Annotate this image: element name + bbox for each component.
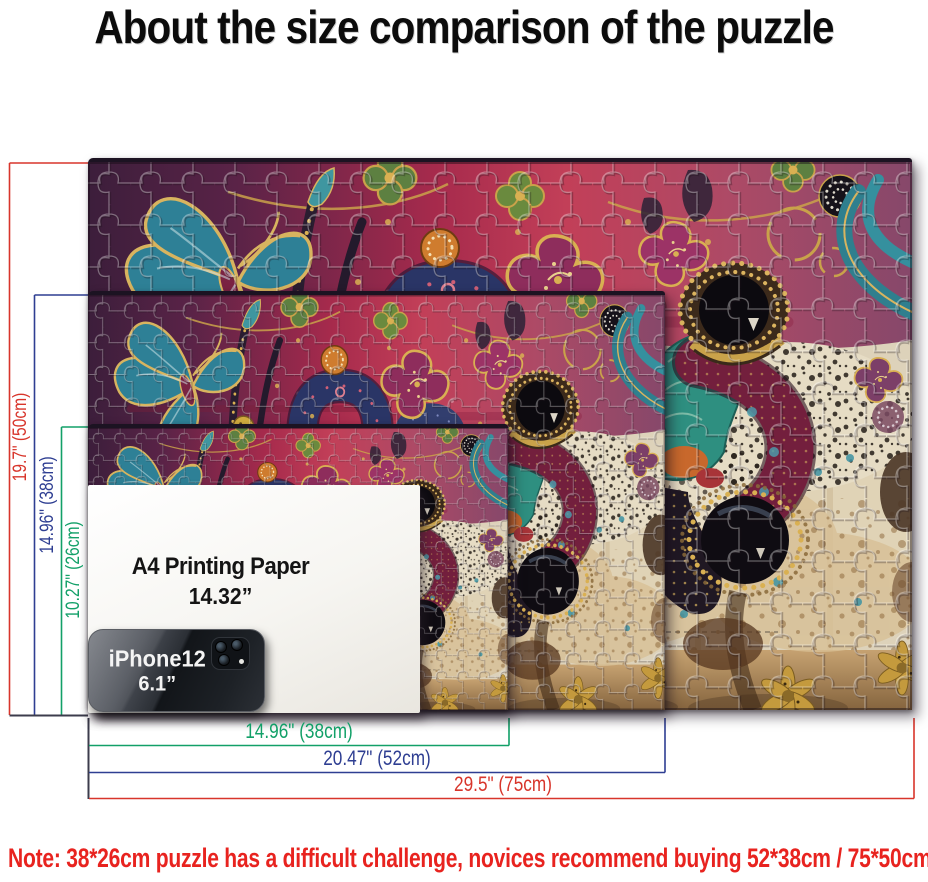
height-label-38cm: 14.96" (38cm) — [37, 456, 59, 553]
camera-lens-icon — [218, 654, 230, 666]
camera-flash-icon — [239, 659, 244, 664]
size-comparison-infographic: About the size comparison of the puzzle — [0, 0, 928, 882]
a4-paper-label: A4 Printing Paper — [111, 553, 331, 581]
iphone-label: iPhone12 — [99, 645, 215, 672]
height-label-26cm: 10.27" (26cm) — [63, 521, 85, 618]
note-text: Note: 38*26cm puzzle has a difficult cha… — [8, 843, 928, 874]
page-title: About the size comparison of the puzzle — [56, 0, 873, 54]
width-label-52cm: 20.47" (52cm) — [323, 747, 431, 771]
width-label-75cm: 29.5" (75cm) — [454, 773, 552, 797]
height-label-50cm: 19.7" (50cm) — [10, 393, 32, 482]
iphone-size: 6.1” — [99, 672, 215, 696]
iphone: iPhone12 6.1” — [88, 629, 265, 712]
width-label-38cm: 14.96" (38cm) — [245, 720, 353, 744]
camera-lens-icon — [231, 639, 243, 651]
a4-paper-size: 14.32” — [111, 583, 331, 610]
